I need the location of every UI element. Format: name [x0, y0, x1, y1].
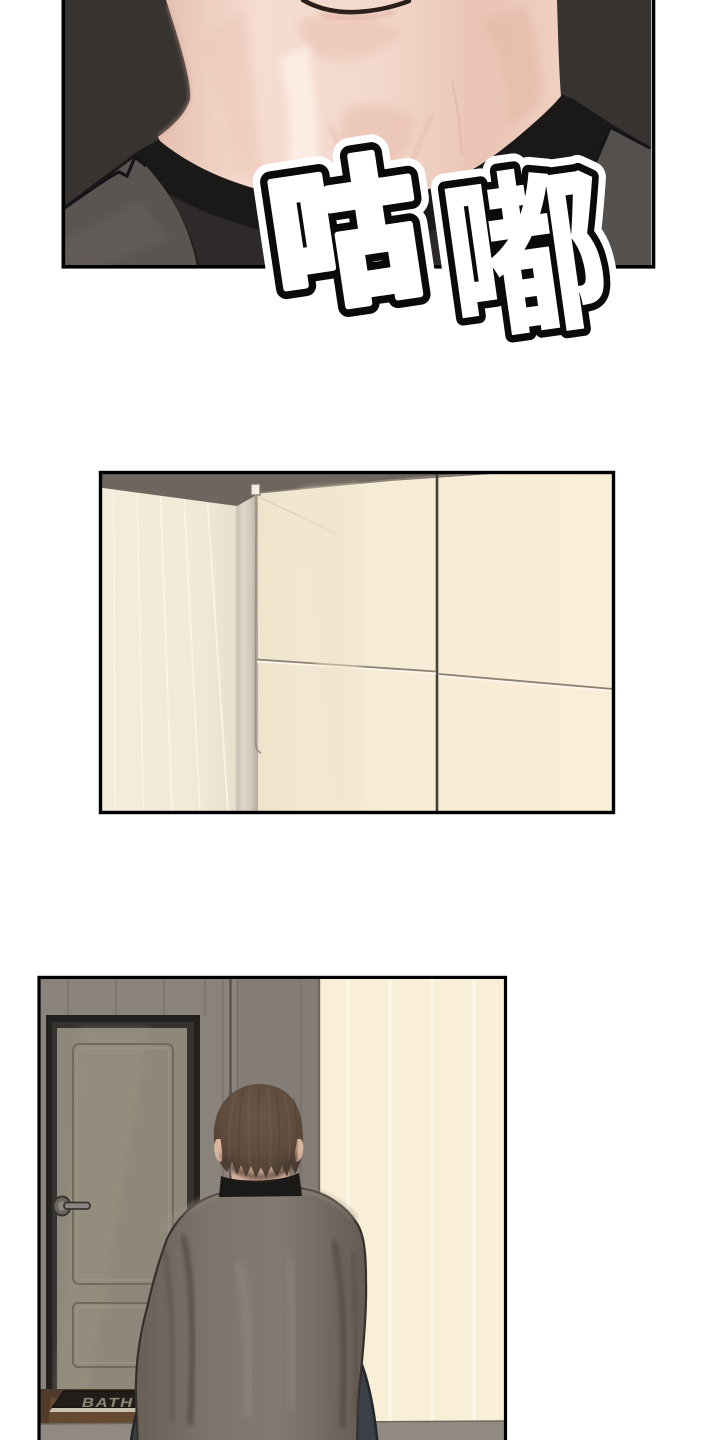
svg-text:BATH: BATH	[80, 1396, 136, 1411]
